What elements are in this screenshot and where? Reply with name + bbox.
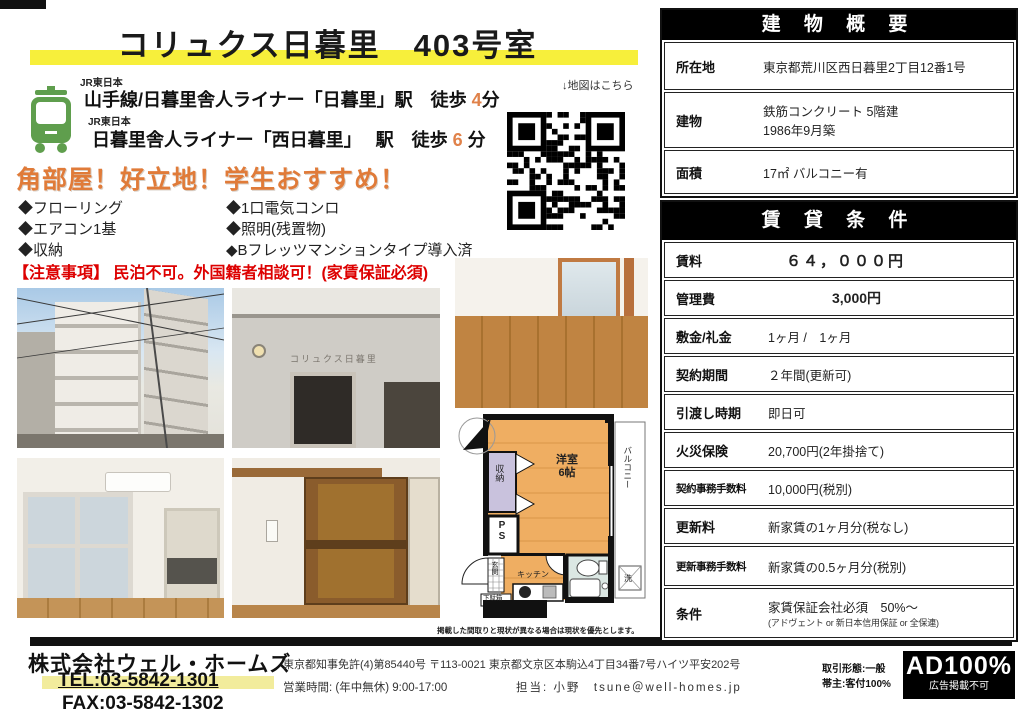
- row-value: 新家賃の1ヶ月分(税なし): [760, 517, 908, 536]
- feature-item: ◆収納: [18, 240, 123, 261]
- table-row: 条件 家賃保証会社必須 50%～(アドヴェント or 新日本信用保証 or 全保…: [664, 588, 1014, 638]
- license-line: 東京都知事免許(4)第85440号 〒113-0021 東京都文京区本駒込4丁目…: [283, 656, 823, 672]
- rail-station-1: 山手線/日暮里舎人ライナー「日暮里」駅: [84, 90, 413, 110]
- photo-building-entrance: コリュクス日暮里: [232, 288, 440, 448]
- table-row: 火災保険 20,700円(2年掛捨て): [664, 432, 1014, 468]
- lead-type: 帯主:客付100%: [822, 677, 891, 692]
- feature-item: ◆Bフレッツマンションタイプ導入済: [226, 240, 473, 261]
- photo-detail: [23, 544, 133, 548]
- notice-text: 【注意事項】 民泊不可。外国籍者相談可！(家賃保証必須): [13, 259, 428, 283]
- photo-detail: [408, 477, 440, 609]
- plan-label-closet: 収納: [494, 464, 504, 482]
- walk-label-2: 徒歩: [394, 130, 453, 150]
- deal-type: 取引形態:一般: [822, 662, 891, 677]
- row-label: 更新事務手数料: [665, 559, 760, 574]
- ad-percentage: AD100%: [903, 651, 1015, 681]
- walk-label-1: 徒歩: [413, 90, 472, 110]
- photo-detail: [252, 344, 266, 358]
- table-row: 引渡し時期 即日可: [664, 394, 1014, 430]
- row-label: 所在地: [665, 57, 755, 76]
- rail-line-2: 日暮里舎人ライナー「西日暮里」 駅 徒歩 6 分: [92, 126, 486, 152]
- row-value: 鉄筋コンクリート 5階建 1986年9月築: [755, 101, 898, 139]
- table-row: 所在地 東京都荒川区西日暮里2丁目12番1号: [664, 42, 1014, 90]
- row-value: 新家賃の0.5ヶ月分(税別): [760, 557, 906, 576]
- photo-detail: [232, 288, 440, 318]
- plan-label-washer: 洗: [624, 574, 632, 583]
- row-label: 引渡し時期: [665, 403, 760, 422]
- table-row: 管理費 3,000円: [664, 280, 1014, 316]
- row-label: 建物: [665, 111, 755, 130]
- table-row: 契約事務手数料 10,000円(税別): [664, 470, 1014, 506]
- row-label: 面積: [665, 163, 755, 182]
- phone-number: TEL:03-5842-1301: [58, 670, 219, 692]
- feature-list-right: ◆1口電気コンロ ◆照明(残置物) ◆Bフレッツマンションタイプ導入済: [226, 198, 473, 261]
- table-row: 更新料 新家賃の1ヶ月分(税なし): [664, 508, 1014, 544]
- feature-item: ◆1口電気コンロ: [226, 198, 473, 219]
- row-value: 東京都荒川区西日暮里2丁目12番1号: [755, 57, 966, 76]
- photo-detail: [304, 540, 408, 549]
- building-table-header: 建 物 概 要: [662, 10, 1016, 40]
- row-label: 敷金/礼金: [665, 327, 760, 346]
- table-row: 面積 17㎡ バルコニー有: [664, 150, 1014, 194]
- catchphrase: 角部屋！好立地！学生おすすめ！: [16, 160, 406, 196]
- row-value: ６４，０００円: [760, 250, 905, 271]
- row-value: 1ヶ月 / 1ヶ月: [760, 327, 851, 346]
- rent-conditions-table: 賃 貸 条 件 賃料 ６４，０００円 管理費 3,000円 敷金/礼金 1ヶ月 …: [660, 200, 1018, 642]
- row-label: 条件: [665, 604, 760, 623]
- photo-detail: [105, 472, 171, 492]
- rental-flyer-page: コリュクス日暮里 403号室 JR東日本 山手線/日暮里舎人ライナー「日暮里」駅…: [0, 0, 1024, 724]
- row-value: 家賃保証会社必須 50%～(アドヴェント or 新日本信用保証 or 全保連): [760, 597, 939, 629]
- rail-station-2: 日暮里舎人ライナー「西日暮里」 駅: [92, 130, 394, 150]
- walk-minutes-1: 4: [472, 90, 482, 110]
- row-label: 契約期間: [665, 365, 760, 384]
- photo-detail: [164, 508, 220, 606]
- floor-plan: 洋室 6帖 収納 PS バルコニー 玄関 キッチン 下駄箱 洗: [455, 408, 650, 624]
- table-row: 建物 鉄筋コンクリート 5階建 1986年9月築: [664, 92, 1014, 148]
- floor-plan-drawing: [455, 408, 650, 624]
- plan-label-room: 洋室 6帖: [539, 454, 595, 479]
- photo-detail: [232, 605, 440, 618]
- photo-detail: [232, 468, 382, 477]
- photo-detail: [384, 382, 440, 448]
- photo-detail: [75, 492, 80, 604]
- row-label: 管理費: [665, 289, 760, 308]
- plan-label-balcony: バルコニー: [622, 446, 632, 489]
- contact-person: 担当: 小野 tsune＠well-homes.jp: [516, 679, 742, 695]
- print-corner-mark: [0, 0, 46, 9]
- rent-table-header: 賃 貸 条 件: [662, 202, 1016, 240]
- building-overview-table: 建 物 概 要 所在地 東京都荒川区西日暮里2丁目12番1号 建物 鉄筋コンクリ…: [660, 8, 1018, 198]
- table-row: 敷金/礼金 1ヶ月 / 1ヶ月: [664, 318, 1014, 354]
- row-value: ２年間(更新可): [760, 365, 851, 384]
- table-row: 賃料 ６４，０００円: [664, 242, 1014, 278]
- photo-room-window: [17, 458, 224, 618]
- table-row: 更新事務手数料 新家賃の0.5ヶ月分(税別): [664, 546, 1014, 586]
- photo-flooring-room: [455, 258, 648, 408]
- row-label: 賃料: [665, 251, 760, 270]
- photo-detail: [455, 316, 648, 408]
- page-title: コリュクス日暮里 403号室: [0, 20, 655, 65]
- plan-label-ps: PS: [496, 520, 508, 542]
- plan-label-kitchen: キッチン: [517, 570, 549, 579]
- row-label: 契約事務手数料: [665, 481, 760, 496]
- business-hours: 営業時間: (年中無休) 9:00-17:00: [283, 679, 447, 695]
- photo-closet: [232, 458, 440, 618]
- feature-item: ◆フローリング: [18, 198, 123, 219]
- deal-type-block: 取引形態:一般 帯主:客付100%: [822, 662, 891, 692]
- power-lines: [17, 288, 224, 448]
- qr-code: [507, 112, 625, 230]
- plan-label-shoebox: 下駄箱: [483, 595, 503, 602]
- row-value: 17㎡ バルコニー有: [755, 163, 868, 182]
- walk-minutes-2: 6: [453, 130, 463, 150]
- building-sign-text: コリュクス日暮里: [290, 352, 378, 365]
- feature-item: ◆照明(残置物): [226, 219, 473, 240]
- row-value: 20,700円(2年掛捨て): [760, 441, 884, 460]
- plan-label-entrance: 玄関: [490, 561, 498, 575]
- feature-item: ◆エアコン1基: [18, 219, 123, 240]
- photo-detail: [290, 372, 356, 448]
- map-note: ↓地図はこちら: [562, 77, 634, 93]
- table-row: 契約期間 ２年間(更新可): [664, 356, 1014, 392]
- condition-main: 家賃保証会社必須 50%～: [768, 601, 918, 615]
- condition-sub: (アドヴェント or 新日本信用保証 or 全保連): [768, 616, 939, 629]
- ad-note: 広告掲載不可: [903, 681, 1015, 693]
- walk-unit-1: 分: [482, 90, 500, 110]
- photo-detail: [167, 558, 217, 584]
- row-value: 即日可: [760, 403, 806, 422]
- photo-detail: [266, 520, 278, 542]
- row-value: 3,000円: [760, 288, 881, 308]
- walk-unit-2: 分: [463, 130, 486, 150]
- photo-detail: [17, 598, 224, 618]
- ad-badge: AD100% 広告掲載不可: [903, 651, 1015, 699]
- rail-line-1: 山手線/日暮里舎人ライナー「日暮里」駅 徒歩 4分: [84, 86, 500, 112]
- fax-number: FAX:03-5842-1302: [62, 693, 224, 715]
- floor-plan-disclaimer: 掲載した間取りと現状が異なる場合は現状を優先とします。: [437, 625, 639, 636]
- row-label: 火災保険: [665, 441, 760, 460]
- row-value: 10,000円(税別): [760, 479, 852, 498]
- train-icon: [25, 84, 77, 163]
- feature-list-left: ◆フローリング ◆エアコン1基 ◆収納: [18, 198, 123, 261]
- row-label: 更新料: [665, 517, 760, 536]
- photo-building-exterior: [17, 288, 224, 448]
